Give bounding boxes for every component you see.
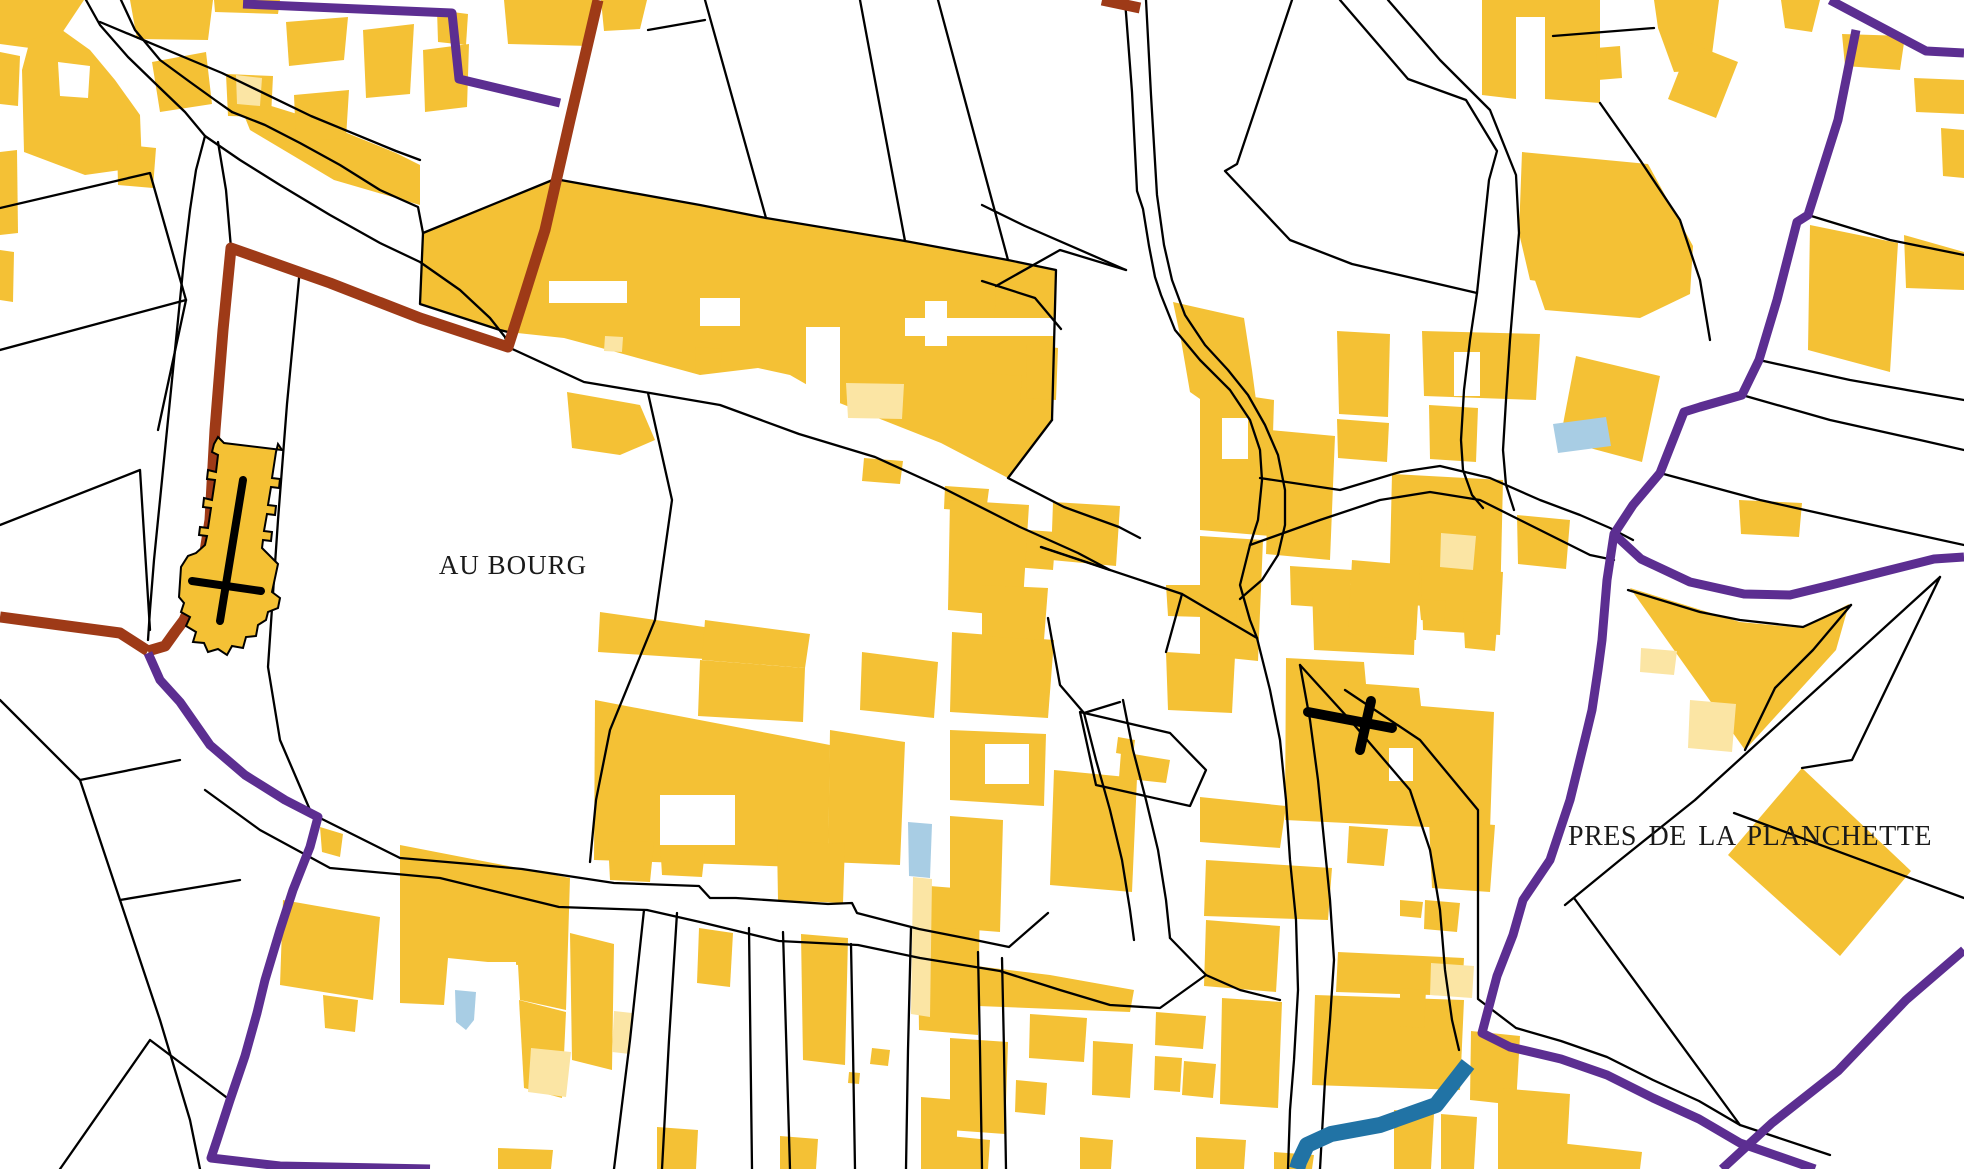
svg-text:PRES DE LA PLANCHETTE: PRES DE LA PLANCHETTE — [1568, 821, 1932, 852]
svg-text:AU BOURG: AU BOURG — [439, 550, 587, 580]
